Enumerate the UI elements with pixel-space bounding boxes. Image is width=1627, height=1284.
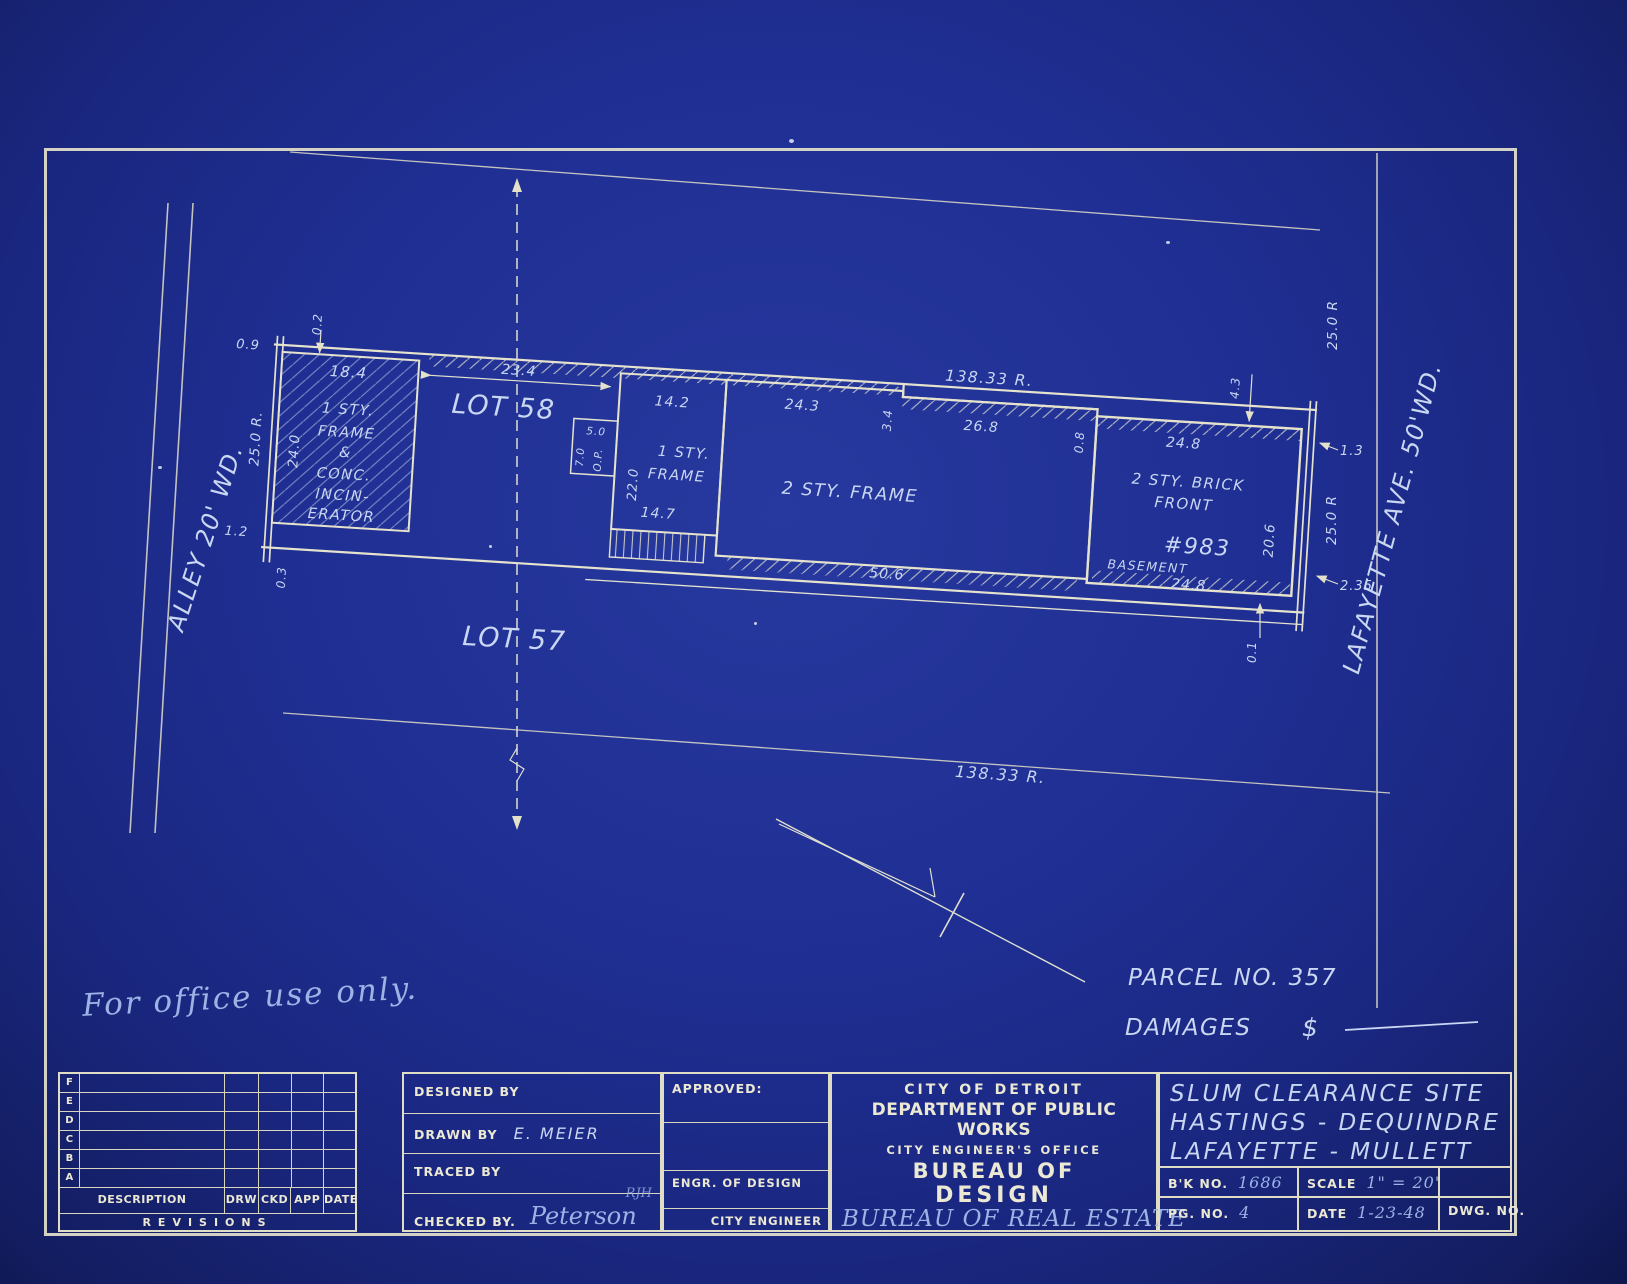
approval-divider-2 [664,1170,828,1171]
date-value: 1-23-48 [1357,1203,1426,1222]
dim-arrow-1-3 [1320,443,1338,450]
dim-22-0: 22.0 [625,467,642,501]
incinerator-line1: 1 STY. [321,401,374,420]
dim-0-1: 0.1 [1245,641,1259,663]
org-city: CITY OF DETROIT [832,1082,1156,1098]
date-header: DATE [324,1188,355,1213]
dim-5-0: 5.0 [586,425,606,438]
dim-arrow-2-35 [1317,576,1338,584]
date-cell: DATE 1-23-48 [1299,1198,1440,1230]
org-real-estate: BUREAU OF REAL ESTATE [834,1206,1194,1232]
blueprint-sheet: 18.4 0.9 0.2 25.0 R. 24.0 1.2 0.3 LOT 58… [0,0,1627,1284]
dim-14-7: 14.7 [640,505,676,523]
dim-20-6: 20.6 [1261,523,1279,558]
org-department: DEPARTMENT OF PUBLIC WORKS [832,1100,1156,1140]
dim-1-2: 1.2 [224,524,249,540]
frame1-label-2: FRAME [647,466,705,486]
revision-letter: A [60,1169,80,1188]
org-design: DESIGN [832,1183,1156,1208]
revision-letter: D [60,1112,80,1131]
scale-label: SCALE [1307,1176,1356,1191]
description-header: DESCRIPTION [60,1188,225,1213]
project-title: SLUM CLEARANCE SITE HASTINGS - DEQUINDRE… [1160,1074,1510,1168]
designed-by-row: DESIGNED BY [404,1074,660,1114]
drw-header: DRW [225,1188,259,1213]
damages-blank-line [1345,1022,1478,1030]
checked-by-signature: Peterson [530,1202,637,1230]
scale-cell: SCALE 1" = 20' [1299,1168,1440,1198]
revision-row: D [60,1112,355,1131]
dim-26-8: 26.8 [963,418,999,436]
dim-0-2: 0.2 [310,313,325,336]
app-header: APP [291,1188,324,1213]
east-boundary-outer [1302,402,1316,631]
centerline-arrow-down [512,816,522,830]
checked-by-initials: RJH [626,1186,652,1201]
incinerator-line5: INCIN- [315,486,371,505]
dim-25-0-r-ne: 25.0 R [1325,300,1341,350]
ckd-header: CKD [259,1188,292,1213]
revision-letter: F [60,1074,80,1093]
checked-by-row: CHECKED BY. Peterson RJH [404,1194,660,1234]
project-block: SLUM CLEARANCE SITE HASTINGS - DEQUINDRE… [1158,1072,1512,1232]
revisions-table: F E D C B A DESCRIPTION DRW CKD APP DATE… [58,1072,357,1232]
book-number-label: B'K NO. [1168,1176,1228,1191]
revision-row: C [60,1131,355,1150]
revision-row: E [60,1093,355,1112]
dim-24-3: 24.3 [784,397,820,415]
dim-138-33-south: 138.33 R. [954,762,1046,787]
dim-50-6: 50.6 [869,565,905,583]
dim-24-8-bottom: 24.8 [1171,576,1207,594]
page-number-cell: PG. NO. 4 [1160,1198,1299,1230]
dim-23-4: 23.4 [501,362,537,380]
approved-label: APPROVED: [672,1081,763,1096]
drawing-number-label: DWG. NO. [1448,1203,1525,1218]
south-lot-line [283,713,1390,793]
damages-dollar-sign: $ [1302,1013,1319,1042]
empty-cell [1440,1168,1510,1198]
signature-block: DESIGNED BY DRAWN BY E. MEIER TRACED BY … [402,1072,662,1232]
dim-24-8-top: 24.8 [1166,435,1202,453]
drawn-by-label: DRAWN BY [414,1127,498,1142]
date-label: DATE [1307,1206,1347,1221]
lot-58-label: LOT 58 [451,389,557,426]
book-number-cell: B'K NO. 1686 [1160,1168,1299,1198]
dim-4-3: 4.3 [1228,376,1243,399]
checked-by-label: CHECKED BY. [414,1214,516,1229]
dim-25-0-r-west: 25.0 R. [246,411,265,467]
frame1-steps [609,529,705,563]
dim-0-8: 0.8 [1072,431,1087,454]
damages-label: DAMAGES [1125,1015,1251,1041]
drawing-number-cell: DWG. NO. [1440,1198,1510,1230]
parcel-number-label: PARCEL NO. 357 [1128,965,1337,991]
drawn-by-value: E. MEIER [514,1124,600,1143]
revisions-footer: REVISIONS [60,1214,355,1233]
revision-row: F [60,1074,355,1093]
approval-divider-1 [664,1122,828,1123]
project-grid: B'K NO. 1686 SCALE 1" = 20' PG. NO. 4 DA… [1160,1168,1510,1230]
north-arrow [776,819,1085,982]
west-boundary-outer [263,337,277,562]
city-engineer-label: CITY ENGINEER [711,1214,822,1228]
revision-row: A [60,1169,355,1188]
revision-letter: B [60,1150,80,1169]
organization-block: CITY OF DETROIT DEPARTMENT OF PUBLIC WOR… [830,1072,1158,1232]
frame1-label-1: 1 STY. [657,444,710,463]
designed-by-label: DESIGNED BY [414,1084,519,1099]
book-number-value: 1686 [1238,1173,1283,1192]
incinerator-line3: & [338,445,352,462]
traced-by-row: TRACED BY [404,1154,660,1194]
dim-arrow-4-3 [1249,375,1252,421]
traced-by-label: TRACED BY [414,1164,501,1179]
revision-letter: C [60,1131,80,1150]
scale-value: 1" = 20' [1366,1173,1440,1192]
centerline-arrow-up [512,178,522,192]
org-bureau-of: BUREAU OF [832,1159,1156,1183]
drawn-by-row: DRAWN BY E. MEIER [404,1114,660,1154]
revision-letter: E [60,1093,80,1112]
dim-7-0: 7.0 [574,447,587,467]
dim-1-3: 1.3 [1340,444,1364,459]
project-title-line2: HASTINGS - DEQUINDRE [1170,1109,1506,1138]
brick-label-1: 2 STY. BRICK [1131,470,1245,495]
project-title-line3: LAFAYETTE - MULLETT [1170,1138,1506,1167]
north-lot-line [290,152,1320,230]
incinerator-line4: CONC. [316,465,372,484]
lot-57-label: LOT 57 [462,621,567,657]
dim-14-2: 14.2 [654,393,690,411]
engr-of-design-label: ENGR. OF DESIGN [672,1176,802,1190]
alley-line-east [155,203,193,833]
dim-18-4: 18.4 [329,362,367,382]
dim-3-4: 3.4 [880,409,895,432]
frame2-label: 2 STY. FRAME [781,479,918,508]
dim-25-0-r-se: 25.0 R [1324,495,1340,545]
brick-house-number: #983 [1163,533,1231,562]
brick-label-2: FRONT [1154,493,1214,515]
project-title-line1: SLUM CLEARANCE SITE [1170,1080,1506,1109]
lafayette-label: LAFAYETTE AVE. 50'WD. [1337,359,1447,676]
page-number-value: 4 [1239,1203,1250,1222]
org-office: CITY ENGINEER'S OFFICE [832,1143,1156,1157]
dim-0-9: 0.9 [236,337,261,353]
revision-row: B [60,1150,355,1169]
alley-line-west [130,203,168,833]
open-porch-label: O.P. [592,448,605,472]
approval-block: APPROVED: ENGR. OF DESIGN CITY ENGINEER [662,1072,830,1232]
page-number-label: PG. NO. [1168,1206,1229,1221]
dim-0-3: 0.3 [274,566,289,589]
revisions-header-row: DESCRIPTION DRW CKD APP DATE [60,1188,355,1214]
approval-divider-3 [664,1208,828,1209]
dim-24-0: 24.0 [285,433,303,468]
